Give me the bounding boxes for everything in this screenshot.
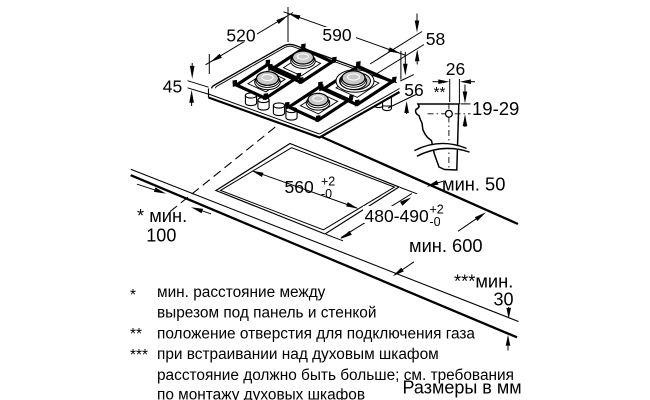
svg-text:56: 56: [404, 80, 423, 100]
svg-text:30: 30: [494, 290, 514, 310]
svg-text:58: 58: [426, 29, 445, 49]
svg-text:вырезом под панель и стенкой: вырезом под панель и стенкой: [157, 305, 376, 322]
svg-text:590: 590: [322, 25, 351, 45]
svg-text:мин. 50: мин. 50: [442, 174, 505, 195]
svg-text:мин. 600: мин. 600: [409, 235, 483, 256]
svg-text:*: *: [130, 287, 136, 304]
svg-text:* мин.: * мин.: [137, 205, 187, 226]
svg-text:45: 45: [163, 77, 182, 97]
svg-text:***мин.: ***мин.: [454, 271, 513, 292]
svg-text:560: 560: [285, 177, 314, 197]
svg-text:520: 520: [226, 26, 255, 46]
svg-text:по монтажу духовых шкафов: по монтажу духовых шкафов: [157, 387, 365, 400]
svg-text:**: **: [434, 84, 446, 101]
svg-text:Размеры в мм: Размеры в мм: [403, 378, 522, 398]
svg-text:-0: -0: [321, 187, 332, 201]
svg-text:**: **: [130, 326, 142, 343]
svg-text:при встраивании над духовым шк: при встраивании над духовым шкафом: [157, 346, 439, 363]
svg-text:26: 26: [446, 59, 465, 79]
svg-text:100: 100: [146, 225, 176, 245]
svg-text:-0: -0: [430, 215, 441, 229]
svg-text:19-29: 19-29: [472, 98, 519, 119]
svg-text:480-490: 480-490: [365, 206, 429, 226]
svg-text:положение отверстия для подклю: положение отверстия для подключения газа: [157, 325, 475, 342]
svg-text:***: ***: [130, 347, 148, 364]
svg-text:мин. расстояние между: мин. расстояние между: [157, 284, 326, 301]
